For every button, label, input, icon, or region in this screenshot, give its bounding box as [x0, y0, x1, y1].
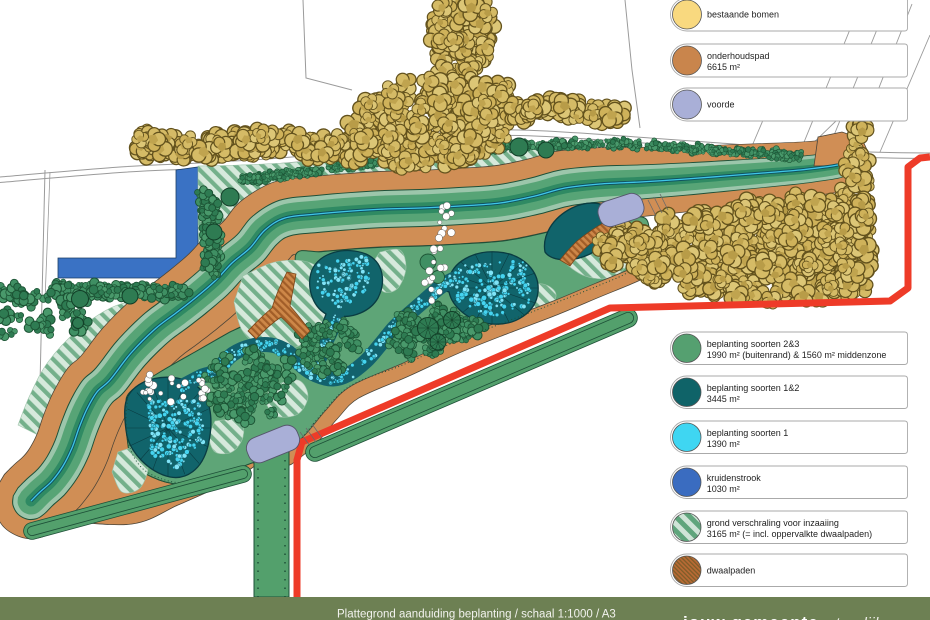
- svg-text:voorde: voorde: [707, 100, 735, 110]
- svg-text:grond verschraling voor inzaai: grond verschraling voor inzaaiing: [707, 518, 839, 528]
- svg-text:Plattegrond aanduiding beplant: Plattegrond aanduiding beplanting / scha…: [337, 609, 616, 620]
- svg-text:beplanting soorten 1: beplanting soorten 1: [707, 428, 789, 438]
- svg-text:dwaalpaden: dwaalpaden: [707, 565, 756, 575]
- svg-text:beplanting soorten 2&3: beplanting soorten 2&3: [707, 339, 800, 349]
- svg-text:1390 m²: 1390 m²: [707, 439, 740, 449]
- svg-text:kruidenstrook: kruidenstrook: [707, 473, 762, 483]
- svg-text:bestaande bomen: bestaande bomen: [707, 10, 779, 20]
- svg-text:1030 m²: 1030 m²: [707, 484, 740, 494]
- svg-text:3445 m²: 3445 m²: [707, 394, 740, 404]
- svg-text:beplanting soorten 1&2: beplanting soorten 1&2: [707, 383, 800, 393]
- svg-text:jouw gemeente: jouw gemeente: [682, 613, 819, 620]
- svg-text:onderhoudspad: onderhoudspad: [707, 51, 770, 61]
- svg-text:6615 m²: 6615 m²: [707, 62, 740, 72]
- svg-text:natuurlijk groen: natuurlijk groen: [818, 615, 929, 620]
- svg-text:1990 m² (buitenrand) & 1560 m²: 1990 m² (buitenrand) & 1560 m² middenzon…: [707, 350, 887, 360]
- svg-text:3165 m² (= incl. oppervalkte d: 3165 m² (= incl. oppervalkte dwaalpaden): [707, 529, 872, 539]
